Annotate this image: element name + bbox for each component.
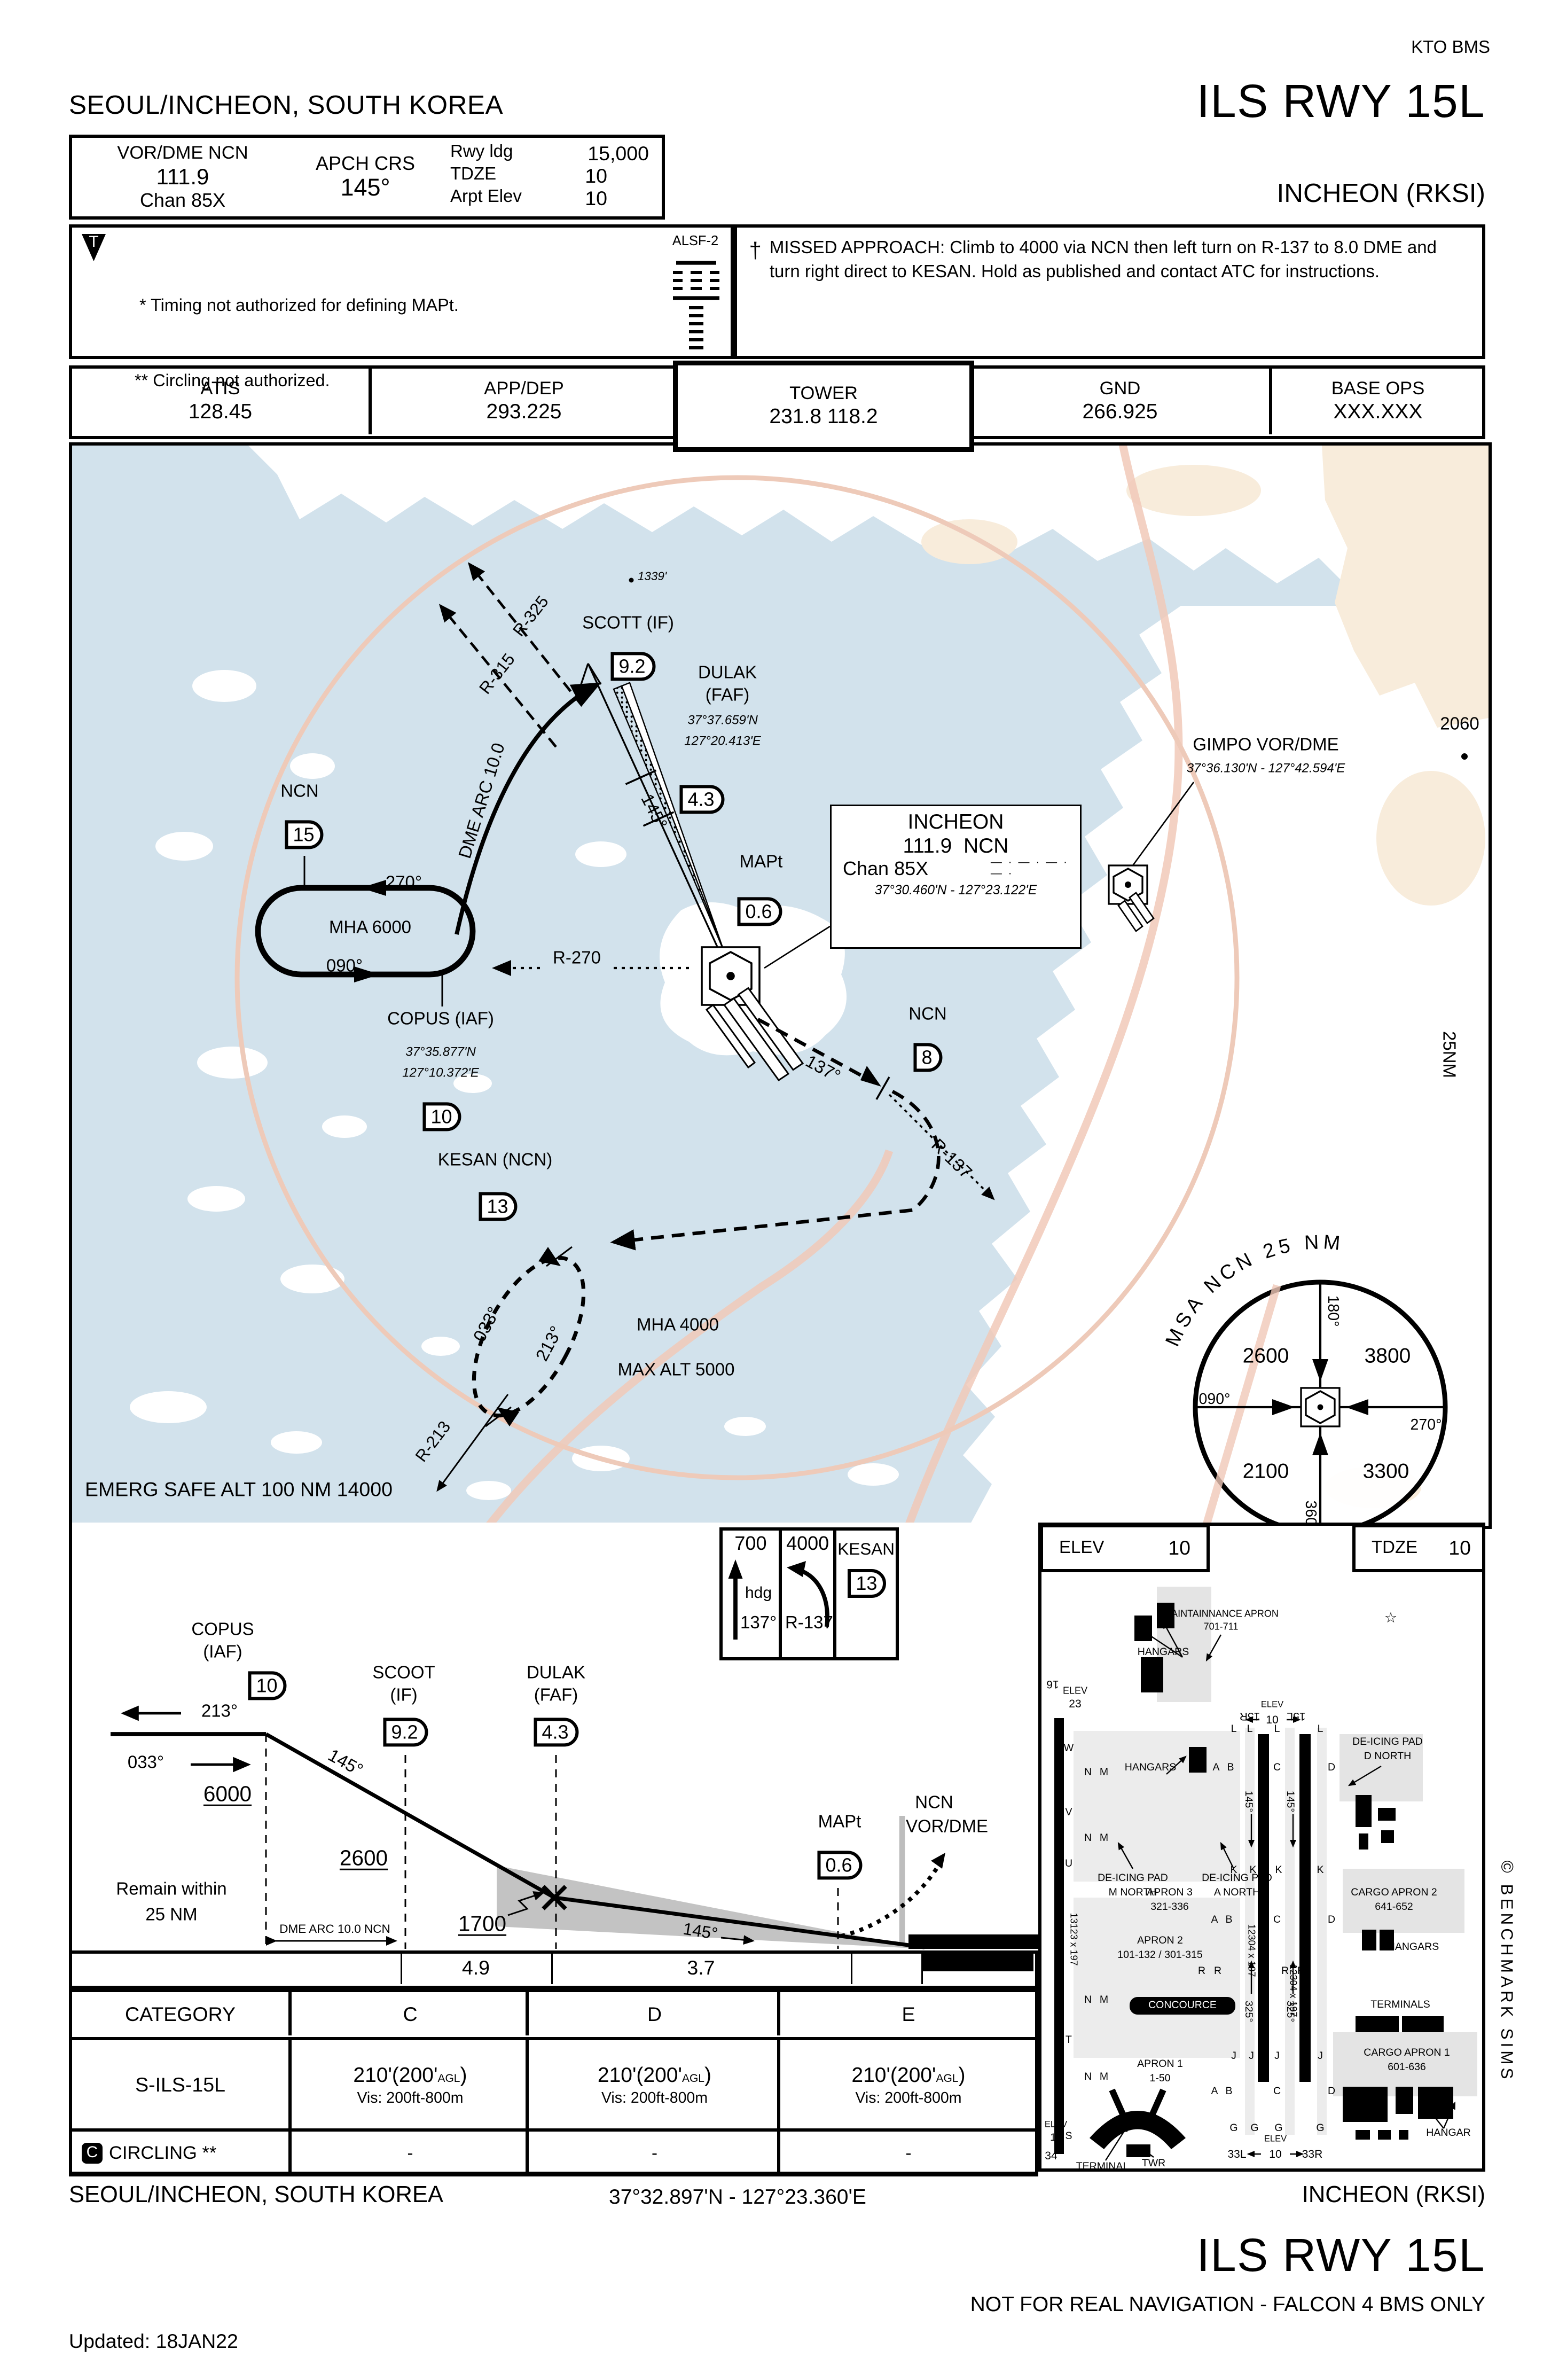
course-145: 145° (636, 792, 669, 833)
radial-r315: R-315 (477, 651, 520, 698)
apron2-l2: 101-132 / 301-315 (1117, 1952, 1202, 1962)
msa-alt-nw: 2600 (1243, 1345, 1289, 1367)
frequency-strip: ATIS 128.45 APP/DEP 293.225 TOWER 231.8 … (69, 365, 1485, 439)
dulak-dme: 4.3 (679, 785, 724, 814)
twy-j1: J (1231, 2053, 1236, 2063)
sils-label: S-ILS-15L (72, 2040, 288, 2128)
copyright-vertical: © BENCHMARK SIMS (1497, 1860, 1516, 2082)
msa-alt-sw: 2100 (1243, 1461, 1289, 1482)
apch-crs-value: 145° (340, 175, 390, 202)
emerg-safe-alt: EMERG SAFE ALT 100 NM 14000 (85, 1480, 393, 1501)
twy-j2: J (1249, 2053, 1254, 2063)
hdg-325-1: 325° (1241, 2001, 1252, 2022)
twy-r1: R (1198, 1968, 1205, 1978)
gimpo-label: GIMPO VOR/DME (1193, 738, 1338, 756)
mapt-label: MAPt (740, 855, 783, 873)
terminal-label: TERMINAL (1076, 2163, 1129, 2172)
profile-runway-bar (921, 1954, 1033, 1971)
hold-outbound-090: 090° (326, 959, 363, 978)
navaid-freq: 111.9 (156, 163, 209, 189)
copus-lat: 37°35.877'N (405, 1046, 476, 1059)
footer-disclaimer: NOT FOR REAL NAVIGATION - FALCON 4 BMS O… (970, 2292, 1485, 2316)
elev-bot-c: ELEV (1264, 2136, 1287, 2145)
copus-mha: MHA 6000 (329, 920, 411, 939)
maint-apron-label: MAINTAINNANCE APRON (1163, 1611, 1279, 1621)
hdg-145-2: 145° (1283, 1791, 1294, 1812)
freq-baseops-value: XXX.XXX (1334, 399, 1423, 423)
twy-l3: L (1274, 1726, 1280, 1736)
hold-033: 033° (472, 1305, 506, 1346)
profile-dulak: DULAK (527, 1666, 585, 1684)
col-e: E (777, 1992, 1037, 2035)
copus-ncn-dme: 15 (285, 820, 324, 849)
scott-dme: 9.2 (610, 652, 655, 681)
runway-box: Rwy ldg15,000 TDZE10 Arpt Elev10 (437, 135, 665, 220)
spot-2060: 2060 (1440, 717, 1479, 736)
airport-title: INCHEON (RKSI) (1276, 180, 1485, 210)
sils-cell-e: 210'(200'AGL) Vis: 200ft-800m (777, 2040, 1037, 2128)
twy-m2: M (1100, 1835, 1108, 1845)
sils-cell-d: 210'(200'AGL) Vis: 200ft-800m (526, 2040, 780, 2128)
col-d: D (526, 1992, 780, 2035)
twy-w: W (1064, 1745, 1074, 1755)
elev-left-l2: 10 (1050, 2134, 1062, 2145)
navaid-box: VOR/DME NCN 111.9 Chan 85X (69, 135, 296, 220)
rwy15r-label: 15R (1240, 1709, 1260, 1721)
rwy16-label: 16 (1046, 1677, 1059, 1689)
deice-a-l2: A NORTH (1214, 1889, 1260, 1900)
tdze-label: TDZE (450, 165, 496, 188)
twy-d3: D (1328, 2088, 1335, 2098)
vis-d: Vis: 200ft-800m (601, 2089, 708, 2107)
rwy-ldg-label: Rwy ldg (450, 143, 513, 165)
alsf2-label: ALSF-2 (661, 232, 730, 248)
profile-scoot: SCOOT (372, 1666, 435, 1684)
apch-crs-label: APCH CRS (316, 152, 415, 175)
circling-label: CIRCLING ** (109, 2144, 216, 2163)
twy-d2: D (1328, 1916, 1335, 1927)
course-137: 137° (802, 1054, 843, 1087)
profile-scoot-dme: 9.2 (383, 1718, 427, 1747)
profile-gs-145: 145° (681, 1922, 719, 1945)
twy-n2: N (1084, 1835, 1092, 1845)
freq-atis: ATIS 128.45 (72, 369, 369, 434)
hangars-label-2: HANGARS (1125, 1764, 1176, 1775)
freq-appdep: APP/DEP 293.225 (369, 369, 676, 434)
elev10-bot: 10 (1269, 2150, 1281, 2161)
profile-ncn: NCN (915, 1796, 953, 1814)
freq-gnd: GND 266.925 (965, 369, 1272, 434)
fix-scott: SCOTT (IF) (582, 616, 674, 635)
deice-m-l1: DE-ICING PAD (1098, 1875, 1168, 1885)
arpt-elev-label: Arpt Elev (450, 188, 522, 210)
twy-j4: J (1318, 2053, 1323, 2063)
col-c: C (288, 1992, 529, 2035)
distance-3-7: 3.7 (551, 1957, 851, 1979)
t-symbol-icon: T (82, 234, 106, 261)
twy-c1: C (1273, 1764, 1281, 1775)
missed-approach-box: † MISSED APPROACH: Climb to 4000 via NCN… (733, 224, 1486, 359)
msa-brg-180: 180° (1323, 1296, 1339, 1327)
fix-dulak: DULAK (698, 666, 757, 684)
twy-r3: R (1281, 1968, 1289, 1978)
footer-airport: INCHEON (RKSI) (1302, 2183, 1485, 2209)
twy-u: U (1065, 1860, 1072, 1871)
apron3-l2: 321-336 (1150, 1903, 1189, 1914)
freq-appdep-value: 293.225 (487, 399, 562, 423)
dme-arc-label: DME ARC 10.0 (458, 742, 511, 861)
note-line-1: * Timing not authorized for defining MAP… (130, 295, 459, 321)
vis-e: Vis: 200ft-800m (855, 2089, 961, 2107)
freq-atis-value: 128.45 (189, 399, 252, 423)
procedure-title: ILS RWY 15L (1197, 77, 1485, 130)
hangars-label-3: HANGARS (1388, 1944, 1439, 1954)
twy-n1: N (1084, 1769, 1092, 1780)
twy-l2: L (1247, 1726, 1253, 1736)
profile-alt-1700: 1700 (458, 1914, 506, 1937)
profile-remain-1: Remain within (116, 1882, 226, 1901)
da-main: 210'(200' (353, 2062, 437, 2086)
profile-033: 033° (128, 1755, 164, 1774)
profile-copus: COPUS (191, 1622, 254, 1641)
profile-213: 213° (201, 1704, 238, 1723)
hold-213: 213° (535, 1324, 568, 1365)
plan-view: MSA NCN 25 NM INCHEON 111.9 NCN Chan 85X… (69, 442, 1492, 1529)
twy-a3: A (1211, 2088, 1218, 2098)
profile-alt-2600: 2600 (340, 1848, 388, 1871)
cargo1-l1: CARGO APRON 1 (1364, 2049, 1450, 2060)
da-sub: AGL (437, 2073, 460, 2085)
twy-a1: A (1212, 1764, 1219, 1775)
freq-gnd-label: GND (1100, 380, 1141, 399)
rwy34-label: 34 (1045, 2151, 1057, 2163)
spot-elevation-1339: 1339' (638, 571, 667, 583)
twy-n3: N (1084, 1996, 1092, 2007)
radial-r213: R-213 (413, 1419, 455, 1466)
tdze-value: 10 (585, 165, 607, 188)
apron2-l1: APRON 2 (1137, 1937, 1183, 1948)
rwy-dim-1: 12304 x 197 (1245, 1924, 1255, 1977)
twy-g2: G (1250, 2125, 1258, 2135)
da-close: ) (959, 2062, 966, 2086)
da-sub: AGL (936, 2073, 958, 2085)
cargo2-l2: 641-652 (1375, 1903, 1413, 1914)
airport-diagram: CONCOURCE (1038, 1523, 1485, 2172)
twy-g3: G (1274, 2125, 1282, 2135)
twy-g1: G (1229, 2125, 1237, 2135)
minimums-header: CATEGORY C D E (72, 1992, 1035, 2040)
profile-mapt: MAPt (818, 1815, 861, 1833)
dulak-lat: 37°37.659'N (687, 714, 758, 728)
msa-brg-090: 090° (1199, 1393, 1231, 1409)
twy-a2: A (1211, 1916, 1218, 1927)
profile-mapt-dme: 0.6 (817, 1851, 861, 1880)
footer-city: SEOUL/INCHEON, SOUTH KOREA (69, 2183, 443, 2209)
circling-cell-e: - (777, 2132, 1037, 2175)
profile-dmearc: DME ARC 10.0 NCN (279, 1923, 390, 1936)
twy-m3: M (1100, 1996, 1108, 2007)
twy-c2: C (1273, 1916, 1281, 1927)
da-main: 210'(200' (851, 2062, 936, 2086)
profile-scoot-if: (IF) (390, 1688, 417, 1707)
kesan-dme: 13 (479, 1192, 518, 1221)
chart-city-title: SEOUL/INCHEON, SOUTH KOREA (69, 91, 503, 122)
col-category: CATEGORY (72, 1992, 288, 2035)
rwy15l-label: 15L (1287, 1709, 1305, 1721)
fix-dulak-faf: (FAF) (706, 688, 750, 707)
rwy33r-label: 33R (1302, 2150, 1323, 2161)
terminals-label: TERMINALS (1370, 2001, 1430, 2012)
twy-d1: D (1328, 1764, 1335, 1775)
rwy33l-label: 33L (1227, 2150, 1246, 2161)
elev-left-l1: ELEV (1045, 2122, 1067, 2131)
twy-r2: R (1214, 1968, 1221, 1978)
star-symbol: ☆ (1384, 1611, 1397, 1626)
alsf2-box: ALSF-2 (661, 224, 733, 359)
twr-label: TWR (1142, 2160, 1165, 2171)
profile-dulak-faf: (FAF) (534, 1688, 578, 1707)
elev-23-l1: ELEV (1063, 1688, 1087, 1698)
profile-remain-2: 25 NM (145, 1908, 197, 1926)
footer-procedure: ILS RWY 15L (1197, 2231, 1485, 2284)
twy-s: S (1065, 2133, 1072, 2143)
kesan-maxalt: MAX ALT 5000 (618, 1363, 735, 1382)
profile-copus-dme: 10 (248, 1671, 287, 1700)
msa-alt-ne: 3800 (1365, 1345, 1411, 1367)
cargo2-l1: CARGO APRON 2 (1351, 1889, 1437, 1900)
freq-gnd-value: 266.925 (1083, 399, 1158, 423)
circling-icon: C (82, 2143, 103, 2164)
footer-coords: 37°32.897'N - 127°23.360'E (609, 2184, 866, 2209)
profile-vordme: VOR/DME (906, 1820, 988, 1838)
gimpo-coords: 37°36.130'N - 127°42.594'E (1187, 762, 1345, 776)
ncn8-dme: 8 (913, 1043, 942, 1072)
twy-l4: L (1318, 1726, 1323, 1736)
freq-tower-label: TOWER (789, 385, 858, 404)
hold-inbound-270: 270° (386, 876, 422, 894)
twy-k3: K (1275, 1867, 1282, 1877)
freq-baseops-label: BASE OPS (1331, 380, 1425, 399)
circling-cell-d: - (526, 2132, 780, 2175)
kesan-mha: MHA 4000 (637, 1318, 719, 1337)
publisher: KTO BMS (1411, 38, 1490, 58)
profile-copus-iaf: (IAF) (203, 1645, 242, 1664)
footer-updated: Updated: 18JAN22 (69, 2330, 238, 2353)
apron1-l1: APRON 1 (1137, 2061, 1183, 2071)
radial-r137: R-137 (927, 1137, 974, 1183)
fix-copus: COPUS (IAF) (387, 1012, 494, 1031)
notes-box: T * Timing not authorized for defining M… (69, 224, 665, 359)
sils-cell-c: 210'(200'AGL) Vis: 200ft-800m (288, 2040, 529, 2128)
elev10-top-l: ELEV (1261, 1702, 1283, 1711)
twy-k2: K (1249, 1867, 1256, 1877)
maint-apron-nums: 701-711 (1204, 1624, 1239, 1634)
hdg-145-1: 145° (1241, 1791, 1252, 1812)
mapt-dme: 0.6 (737, 897, 781, 926)
navaid-chan: Chan 85X (140, 189, 225, 211)
freq-atis-label: ATIS (200, 380, 240, 399)
twy-c3: C (1273, 2088, 1281, 2098)
twy-k1: K (1230, 1867, 1237, 1877)
approach-chart-page: KTO BMS SEOUL/INCHEON, SOUTH KOREA ILS R… (0, 0, 1551, 2380)
twy-b3: B (1225, 2088, 1232, 2098)
copus-ncn-label: NCN (280, 784, 319, 803)
twy-g4: G (1316, 2125, 1324, 2135)
twy-k4: K (1317, 1867, 1323, 1877)
copus-lon: 127°10.372'E (402, 1067, 479, 1080)
twy-b1: B (1227, 1764, 1234, 1775)
distance-row: 4.9 3.7 (69, 1950, 1038, 1989)
cargo1-l2: 601-636 (1388, 2064, 1426, 2074)
elev-23-l2: 23 (1069, 1699, 1081, 1711)
apch-crs-box: APCH CRS 145° (293, 135, 442, 220)
copus-dme: 10 (422, 1102, 461, 1132)
sils-row: S-ILS-15L 210'(200'AGL) Vis: 200ft-800m … (72, 2040, 1035, 2132)
arpt-elev-value: 10 (585, 188, 607, 210)
distance-4-9: 4.9 (401, 1957, 551, 1979)
vis-c: Vis: 200ft-800m (357, 2089, 463, 2107)
freq-tower: TOWER 231.8 118.2 (673, 361, 974, 452)
radial-r325: R-325 (511, 594, 553, 641)
dulak-lon: 127°20.413'E (684, 735, 761, 748)
minimums-table: CATEGORY C D E S-ILS-15L 210'(200'AGL) V… (69, 1989, 1038, 2176)
deice-d-l1: DE-ICING PAD (1352, 1738, 1423, 1749)
profile-alt-6000: 6000 (203, 1784, 252, 1807)
circling-cell-c: - (288, 2132, 529, 2175)
alsf2-icon (663, 250, 728, 356)
deice-d-l2: D NORTH (1364, 1753, 1412, 1763)
apron1-l2: 1-50 (1149, 2075, 1170, 2086)
navaid-name: VOR/DME NCN (117, 144, 248, 163)
ring-25nm: 25NM (1438, 1031, 1456, 1078)
twy-t: T (1066, 2036, 1072, 2047)
twy-v: V (1065, 1809, 1072, 1820)
radial-r270: R-270 (553, 951, 601, 970)
da-main: 210'(200' (598, 2062, 682, 2086)
fix-kesan: KESAN (NCN) (438, 1153, 553, 1172)
twy-r4: R (1297, 1968, 1305, 1978)
profile-course-145: 145° (324, 1747, 365, 1781)
circling-row: C CIRCLING ** - - - (72, 2132, 1035, 2175)
hangar-label: HANGAR (1426, 2129, 1470, 2140)
da-close: ) (460, 2062, 467, 2086)
ncn8-label: NCN (908, 1007, 947, 1026)
msa-alt-se: 3300 (1363, 1461, 1409, 1482)
missed-approach-text: MISSED APPROACH: Climb to 4000 via NCN t… (749, 237, 1470, 285)
rwy-dim-3: 13123 x 197 (1067, 1913, 1077, 1965)
twy-j3: J (1274, 2053, 1280, 2063)
freq-appdep-label: APP/DEP (484, 380, 564, 399)
twy-n4: N (1084, 2073, 1092, 2084)
da-sub: AGL (682, 2073, 704, 2085)
twy-b2: B (1225, 1916, 1232, 1927)
msa-brg-270: 270° (1411, 1418, 1442, 1434)
rwy-ldg-value: 15,000 (587, 143, 649, 165)
twy-m1: M (1100, 1769, 1108, 1780)
freq-tower-value: 231.8 118.2 (769, 404, 878, 428)
profile-dulak-dme: 4.3 (534, 1718, 578, 1747)
apron3-l1: APRON 3 (1147, 1889, 1193, 1900)
dagger-symbol: † (749, 237, 762, 263)
twy-m4: M (1100, 2073, 1108, 2084)
freq-baseops: BASE OPS XXX.XXX (1269, 369, 1484, 434)
hangars-label-1: HANGARS (1138, 1649, 1189, 1659)
twy-l1: L (1231, 1726, 1237, 1736)
da-close: ) (704, 2062, 711, 2086)
